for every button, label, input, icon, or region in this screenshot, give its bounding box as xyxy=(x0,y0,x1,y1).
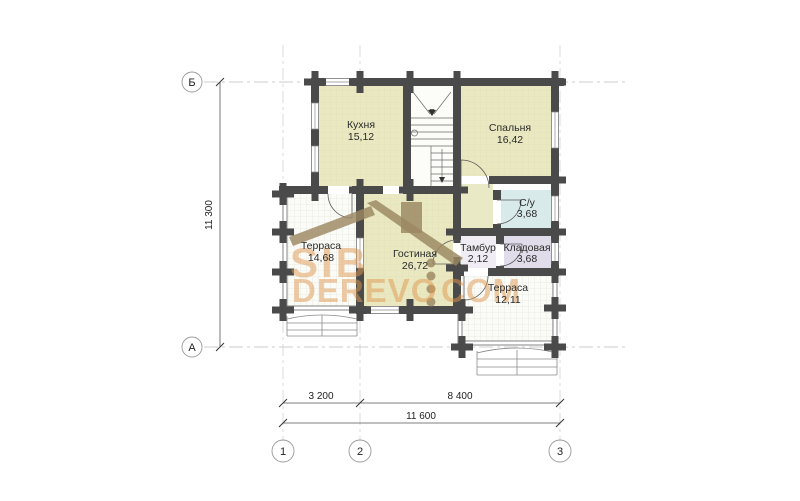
label-storage-area: 3,68 xyxy=(517,253,538,265)
label-bathroom-area: 3,68 xyxy=(517,208,538,220)
floor-plan-canvas: SIB DEREVO COM Кухня 15,12 Спальня 16,42… xyxy=(0,0,800,501)
axis-label-a: А xyxy=(188,342,196,354)
label-kitchen-name: Кухня xyxy=(347,119,375,131)
axis-label-1: 1 xyxy=(280,446,286,458)
label-terrace-left-name: Терраса xyxy=(301,240,341,252)
label-vestibule-area: 2,12 xyxy=(468,253,489,265)
label-bedroom-area: 16,42 xyxy=(497,134,523,146)
logo-chimney xyxy=(401,202,422,233)
axis-label-3: 3 xyxy=(557,446,563,458)
watermark-line2-word: DEREVO xyxy=(292,272,437,309)
dim-total: 11 600 xyxy=(406,411,436,422)
window-kitchen-2 xyxy=(312,146,319,172)
window-bathroom xyxy=(552,196,559,222)
label-bedroom-name: Спальня xyxy=(489,122,531,134)
floor-plan-page: SIB DEREVO COM Кухня 15,12 Спальня 16,42… xyxy=(0,0,800,501)
window-storage xyxy=(552,240,559,264)
dim-height: 11 300 xyxy=(204,200,215,230)
label-terrace-left-area: 14,68 xyxy=(308,252,334,264)
window-kitchen-1 xyxy=(312,103,319,129)
axis-label-b: Б xyxy=(188,77,195,89)
window-top xyxy=(325,79,351,86)
room-stairwell xyxy=(411,86,453,186)
label-living-area: 26,72 xyxy=(402,260,428,272)
window-bedroom xyxy=(552,112,559,148)
dim-segment-1: 3 200 xyxy=(308,391,333,402)
label-living-name: Гостиная xyxy=(393,248,437,260)
dim-segment-2: 8 400 xyxy=(447,391,472,402)
label-terrace-right-area: 12,11 xyxy=(495,294,521,306)
label-terrace-right-name: Терраса xyxy=(488,282,528,294)
label-kitchen-area: 15,12 xyxy=(348,131,374,143)
axis-label-2: 2 xyxy=(357,446,363,458)
